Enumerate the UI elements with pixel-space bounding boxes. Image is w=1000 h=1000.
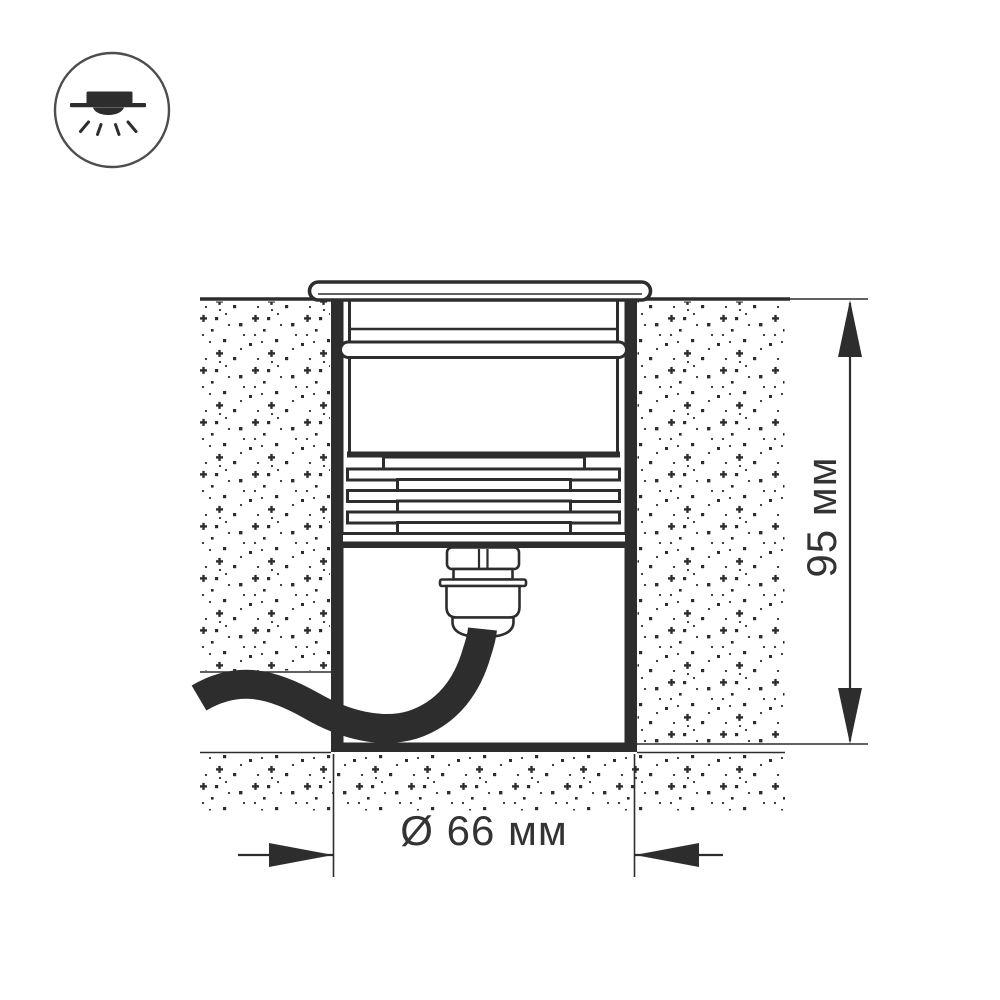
dimension-height-arrow-up (838, 300, 862, 357)
gasket-ring (341, 342, 627, 358)
dimension-height-arrow-down (838, 688, 862, 744)
soil-bottom (200, 754, 785, 811)
ground-section (200, 299, 868, 811)
sleeve-wall-right (625, 298, 638, 752)
luminaire-body (310, 282, 651, 548)
soil-left (200, 302, 330, 671)
diagram-canvas: 95 мм Ø 66 мм (0, 0, 1000, 1000)
gland-body (447, 586, 520, 618)
dimension-height: 95 мм (798, 300, 862, 744)
icon-fixture-body (87, 92, 133, 105)
dimension-diameter-arrow-left (269, 843, 333, 867)
dimension-diameter-arrow-right (635, 843, 699, 867)
gland-neck (454, 569, 513, 580)
icon-ceiling-line (70, 103, 146, 107)
cable-gland (440, 548, 526, 638)
bezel-cap (310, 282, 651, 300)
sleeve-bottom (331, 743, 637, 753)
recessed-downlight-icon (55, 53, 169, 167)
dimension-height-label: 95 мм (798, 456, 845, 577)
dimension-diameter-label: Ø 66 мм (400, 807, 567, 854)
soil-right (638, 302, 785, 743)
sleeve-wall-left (331, 298, 344, 752)
gland-nut (447, 548, 519, 570)
